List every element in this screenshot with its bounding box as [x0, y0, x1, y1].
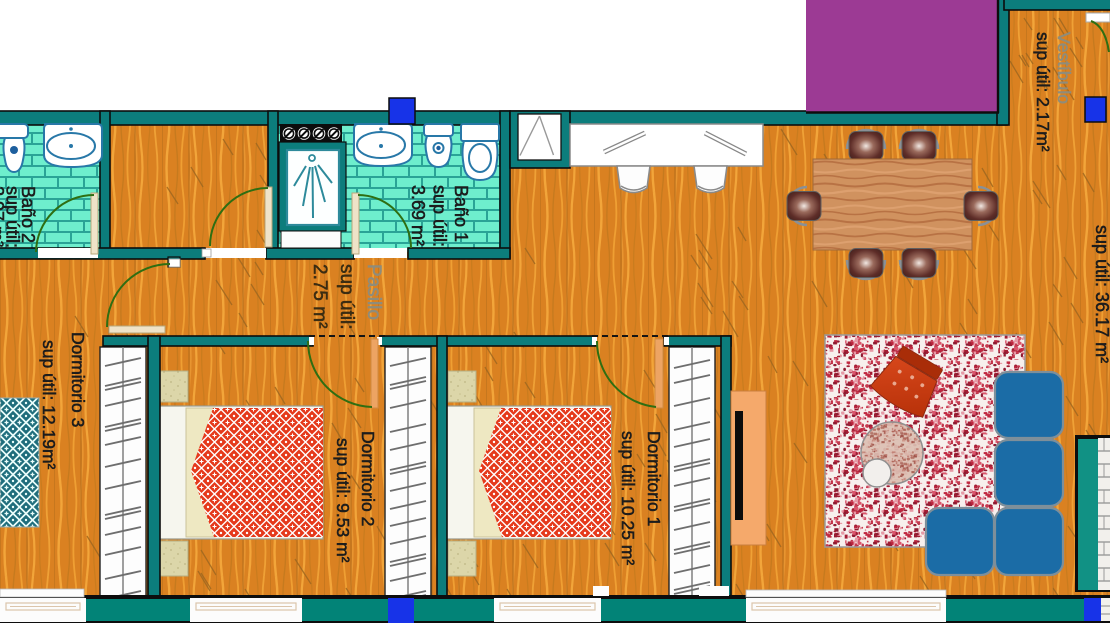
svg-text:sup útil: 36.17 m²: sup útil: 36.17 m²	[1092, 225, 1110, 363]
svg-text:sup útil:: sup útil:	[430, 185, 450, 247]
svg-text:sup útil: 12.19m²: sup útil: 12.19m²	[39, 340, 59, 470]
svg-text:sup útil: 10.25 m²: sup útil: 10.25 m²	[618, 431, 638, 565]
svg-text:sup útil:: sup útil:	[336, 264, 357, 329]
svg-text:Dormitorio 3: Dormitorio 3	[68, 332, 88, 427]
svg-text:Vestíbulo: Vestíbulo	[1054, 32, 1074, 104]
svg-text:Baño 1: Baño 1	[451, 185, 471, 242]
svg-text:sup útil: 9.53 m²: sup útil: 9.53 m²	[333, 438, 353, 563]
svg-text:3.69 m²: 3.69 m²	[408, 185, 428, 246]
svg-text:Pasillo: Pasillo	[363, 264, 384, 320]
svg-text:2.97 m²: 2.97 m²	[0, 186, 7, 247]
svg-text:Dormitorio 2: Dormitorio 2	[358, 431, 378, 526]
svg-text:Dormitorio 1: Dormitorio 1	[644, 431, 664, 526]
svg-text:sup útil: 2.17m²: sup útil: 2.17m²	[1033, 32, 1053, 152]
svg-text:2.75 m²: 2.75 m²	[309, 264, 330, 328]
